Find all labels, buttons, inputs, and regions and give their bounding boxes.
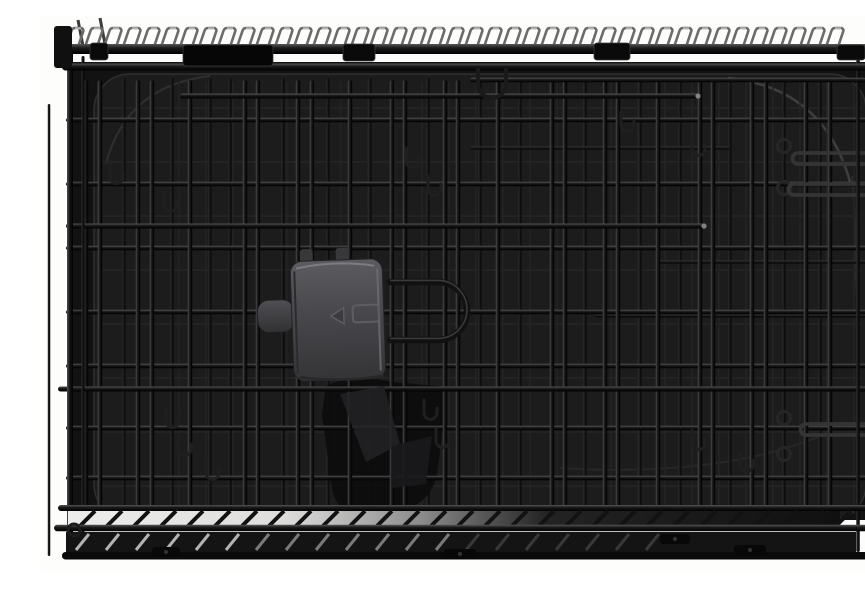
- top-rail: [470, 78, 865, 83]
- vertical-wire: [804, 80, 808, 526]
- mid-wire: [584, 78, 587, 521]
- mid-wire: [479, 78, 482, 521]
- mid-wire: [229, 78, 232, 521]
- rail-clip: [594, 43, 630, 60]
- base-rail: [54, 525, 865, 532]
- horizontal-wire: [66, 118, 865, 122]
- vertical-wire: [443, 80, 447, 526]
- bright-rail: [180, 94, 698, 99]
- mid-wire: [783, 78, 786, 521]
- frame-post: [48, 104, 51, 556]
- mid-wire: [679, 78, 682, 521]
- vertical-wire: [136, 80, 140, 526]
- vertical-wire: [256, 80, 260, 526]
- mid-wire: [819, 78, 822, 521]
- foot-bolt: [458, 552, 462, 556]
- vertical-wire: [188, 80, 192, 526]
- rail-clip: [837, 45, 865, 60]
- vertical-wire: [656, 80, 660, 526]
- vertical-wire: [764, 80, 768, 526]
- base-rail: [58, 505, 865, 511]
- vertical-wire: [616, 80, 620, 526]
- vertical-wire: [496, 80, 500, 526]
- vertical-wire: [828, 80, 832, 526]
- horizontal-wire: [66, 182, 865, 186]
- vertical-wire: [550, 80, 554, 526]
- vertical-wire: [563, 80, 567, 526]
- bright-rail: [66, 224, 704, 229]
- base-gap-band: [68, 511, 840, 527]
- horizontal-wire: [66, 364, 865, 368]
- mid-wire: [596, 314, 865, 317]
- foot-bolt: [748, 548, 752, 552]
- mid-wire: [658, 260, 865, 263]
- horizontal-wire: [66, 426, 865, 430]
- vertical-wire: [698, 80, 702, 526]
- vertical-wire: [603, 80, 607, 526]
- base-frame: [54, 505, 865, 560]
- crate-illustration: [40, 16, 865, 573]
- rail-clip: [90, 43, 108, 60]
- wire-end-highlight: [695, 93, 700, 98]
- horizontal-wire: [66, 476, 865, 480]
- mid-wire: [519, 78, 522, 521]
- foot-bolt: [164, 550, 168, 554]
- mid-wire: [171, 78, 174, 521]
- dog-crate-product-photo: [40, 16, 865, 573]
- mid-wire: [639, 78, 642, 521]
- foot-bolt: [673, 537, 677, 541]
- bright-rail: [58, 387, 865, 392]
- mid-wire: [209, 78, 212, 521]
- mid-wire: [729, 78, 732, 521]
- frame-post: [856, 58, 860, 552]
- top-rail: [56, 44, 865, 54]
- vertical-wire: [98, 80, 102, 526]
- frame-post: [82, 56, 85, 556]
- horizontal-wire: [66, 246, 865, 250]
- mid-wire: [123, 78, 126, 521]
- vertical-wire: [711, 80, 715, 526]
- frame-post: [67, 44, 73, 559]
- vertical-wire: [150, 80, 154, 526]
- corner-bracket: [54, 26, 72, 68]
- wire-end-highlight: [701, 223, 706, 228]
- vertical-wire: [243, 80, 247, 526]
- rail-clip: [343, 44, 375, 61]
- vertical-wire: [456, 80, 460, 526]
- latch-slide-tab: [257, 300, 294, 333]
- mid-wire: [282, 78, 285, 521]
- rail-clip: [183, 45, 273, 66]
- top-rail: [62, 64, 865, 71]
